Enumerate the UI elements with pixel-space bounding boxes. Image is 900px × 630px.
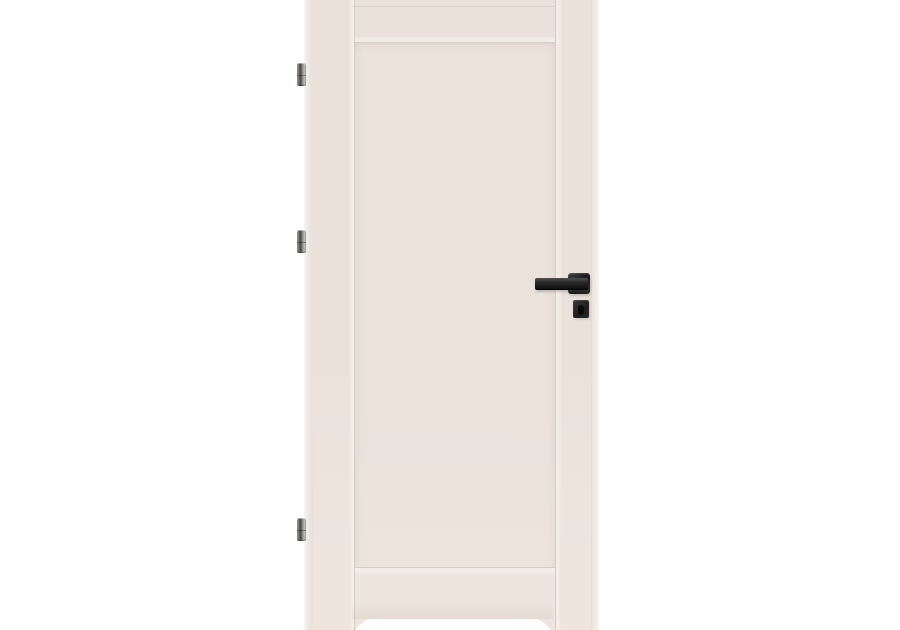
door-top-shadow-line: [352, 6, 556, 7]
floor-reflection-shadow: [352, 603, 553, 619]
door-hinge: [297, 230, 306, 253]
door-hinge: [297, 518, 306, 541]
door-leaf: [304, 0, 598, 630]
door-hinge: [297, 63, 306, 86]
panel-groove-top: [355, 37, 555, 43]
product-photo-stage: [0, 0, 900, 630]
panel-groove-bottom: [355, 567, 555, 575]
keyhole: [578, 304, 584, 315]
door-panel: [355, 43, 555, 567]
handle-lever: [535, 278, 588, 290]
door-right-edge: [591, 0, 599, 630]
panel-groove-right: [555, 0, 562, 630]
panel-groove-left: [349, 0, 355, 630]
keyhole-escutcheon: [573, 300, 589, 318]
